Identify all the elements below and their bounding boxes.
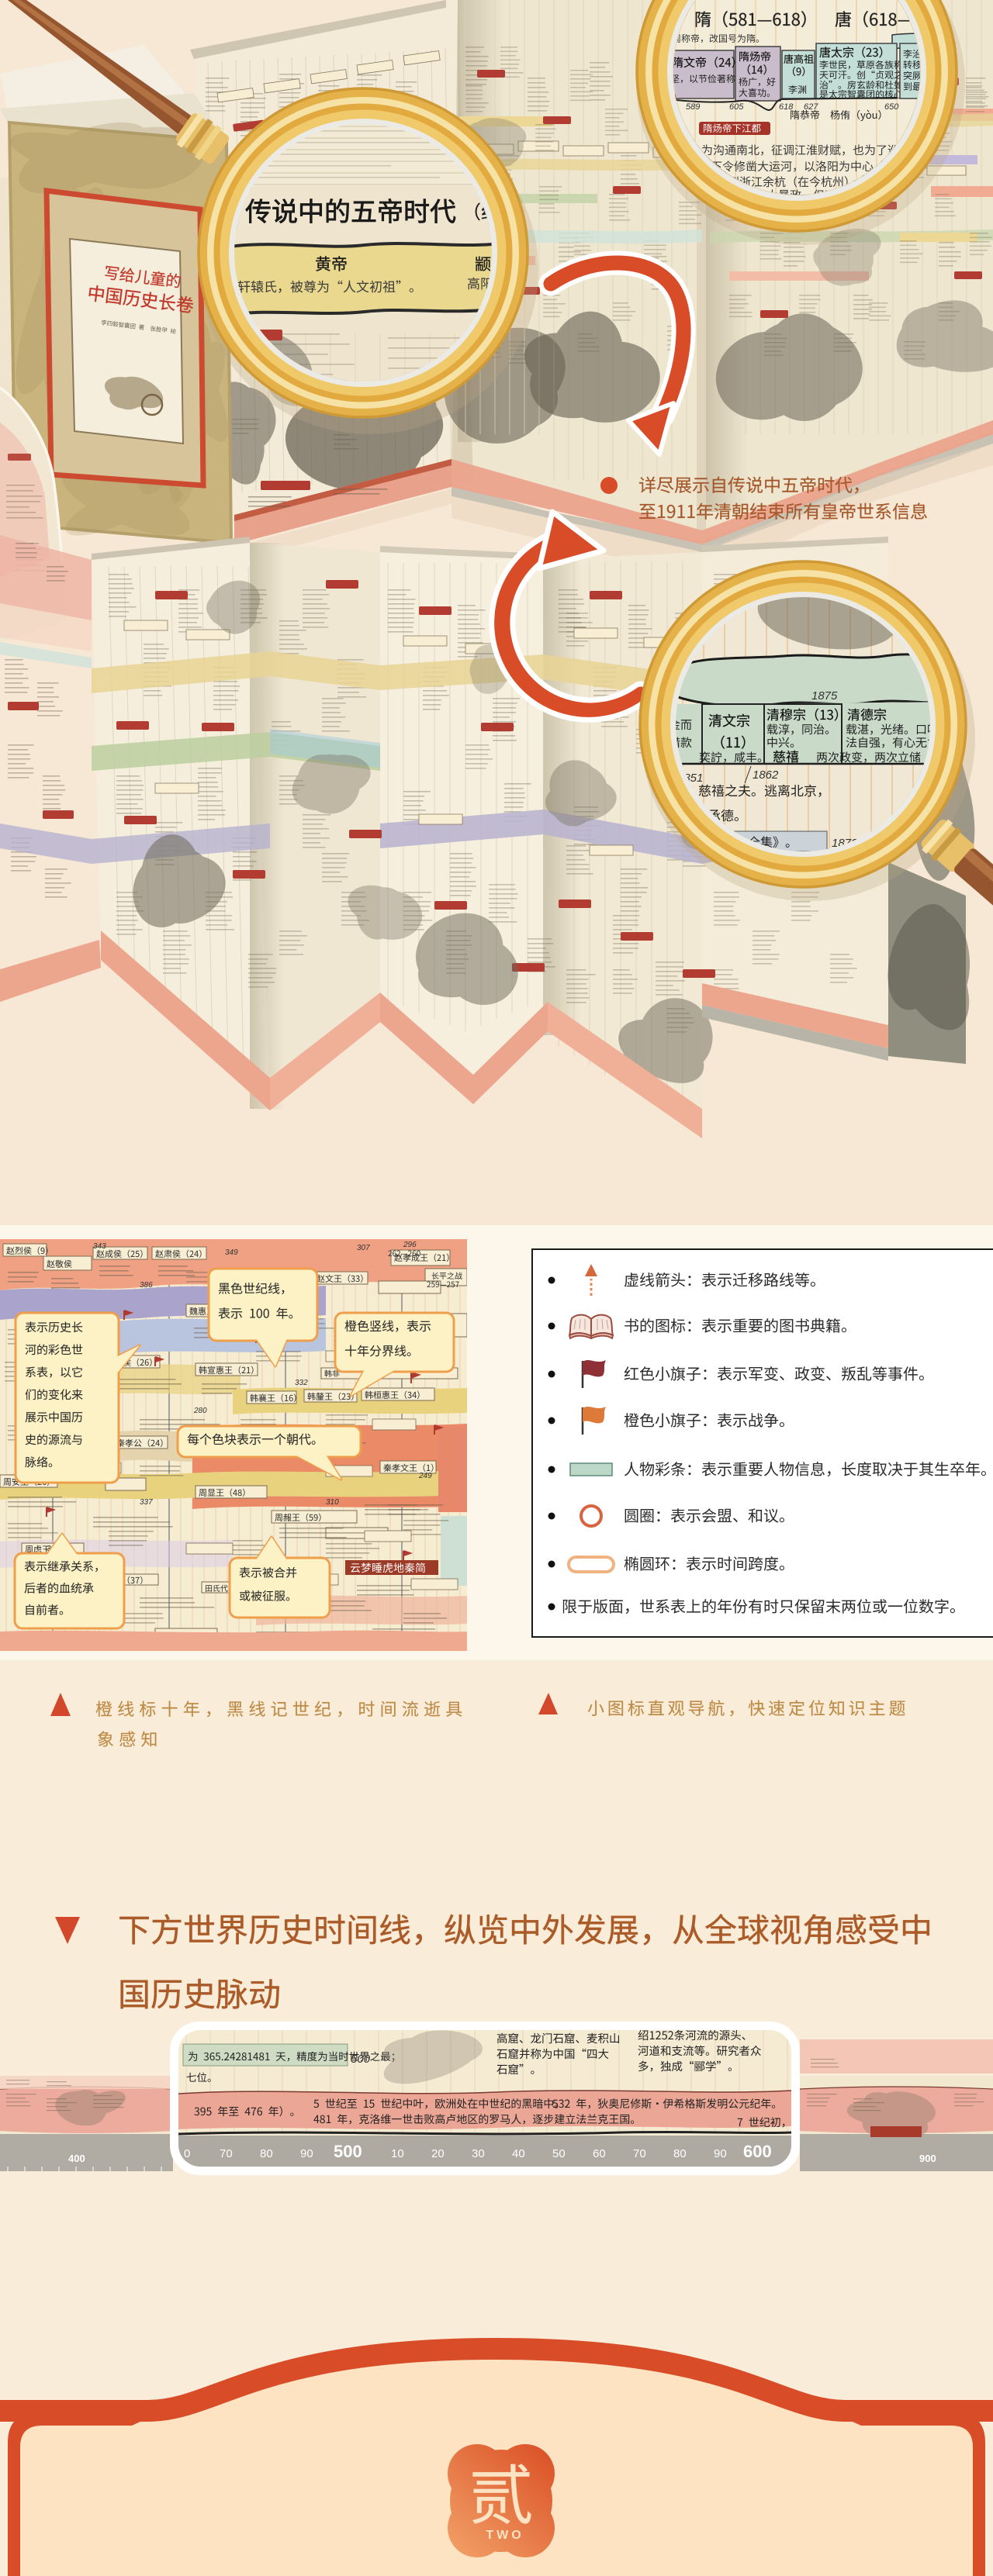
svg-text:80: 80	[260, 2147, 273, 2160]
svg-text:0: 0	[184, 2147, 190, 2160]
svg-text:20: 20	[431, 2147, 445, 2160]
svg-text:618: 618	[779, 102, 794, 112]
svg-text:307: 307	[357, 1244, 370, 1252]
svg-text:70: 70	[633, 2147, 646, 2160]
svg-text:600: 600	[743, 2142, 772, 2161]
svg-text:30: 30	[472, 2147, 485, 2160]
svg-text:40: 40	[512, 2147, 525, 2160]
svg-text:310: 310	[326, 1498, 339, 1507]
svg-text:70: 70	[220, 2147, 233, 2160]
svg-text:80: 80	[673, 2147, 687, 2160]
svg-text:60: 60	[593, 2147, 606, 2160]
svg-text:90: 90	[714, 2147, 727, 2160]
svg-text:589: 589	[686, 102, 700, 112]
svg-text:337: 337	[140, 1498, 153, 1507]
svg-text:349: 349	[225, 1248, 238, 1257]
svg-text:296: 296	[403, 1241, 417, 1249]
svg-text:627: 627	[804, 102, 818, 112]
svg-text:500: 500	[351, 2053, 371, 2066]
svg-text:10: 10	[391, 2147, 404, 2160]
svg-text:1862: 1862	[753, 768, 779, 782]
svg-text:249: 249	[418, 1472, 432, 1480]
svg-text:50: 50	[552, 2147, 566, 2160]
svg-text:343: 343	[93, 1242, 106, 1251]
svg-text:332: 332	[295, 1379, 308, 1387]
svg-text:90: 90	[300, 2147, 313, 2160]
svg-text:605: 605	[729, 102, 744, 112]
svg-text:500: 500	[334, 2142, 362, 2161]
svg-text:650: 650	[884, 102, 899, 112]
svg-text:400: 400	[68, 2153, 85, 2164]
svg-text:1875: 1875	[811, 689, 838, 703]
svg-text:280: 280	[193, 1407, 207, 1415]
svg-text:TWO: TWO	[486, 2529, 524, 2542]
svg-text:386: 386	[140, 1281, 153, 1290]
svg-text:900: 900	[919, 2153, 936, 2164]
